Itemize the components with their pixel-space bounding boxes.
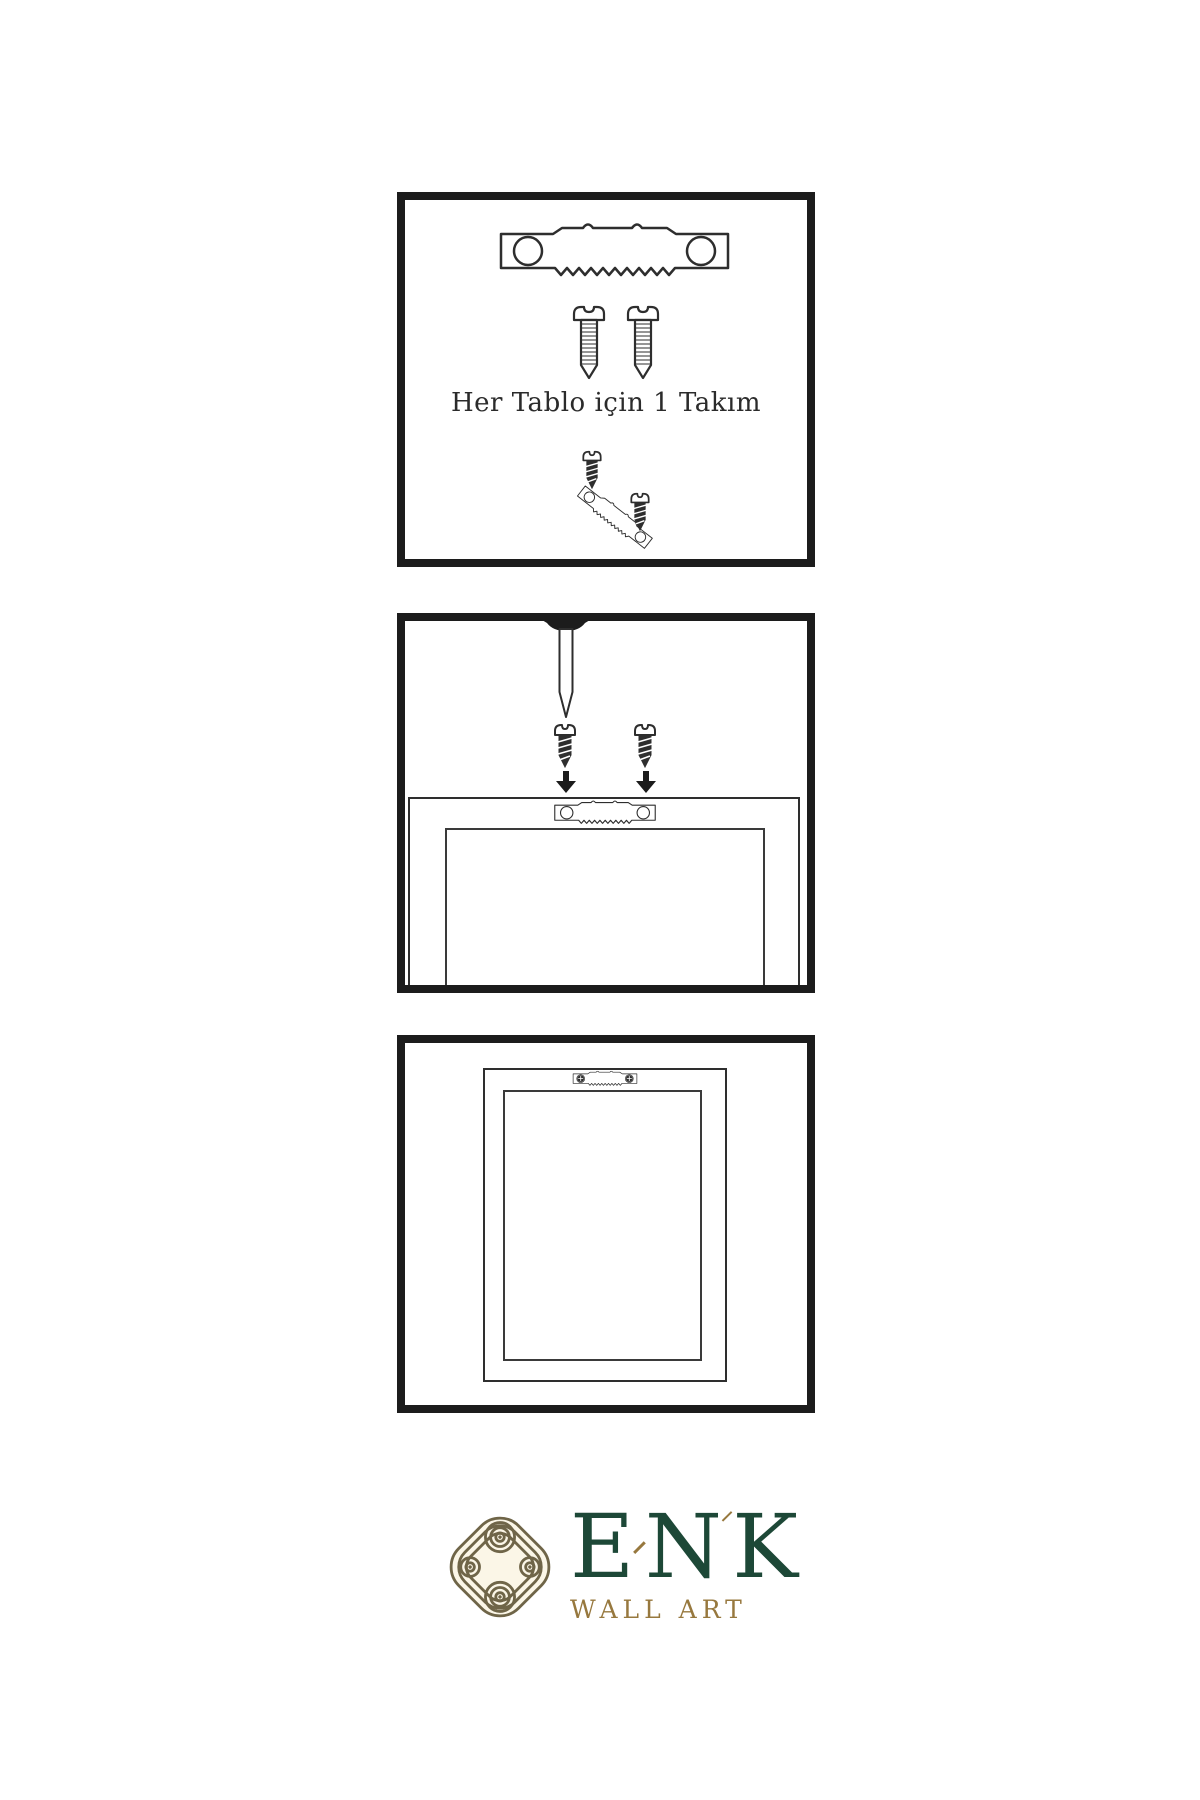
arrow-down-icon bbox=[556, 771, 576, 793]
brand-letter: N bbox=[645, 1500, 722, 1594]
screw-icon bbox=[625, 304, 661, 380]
arrow-down-icon bbox=[636, 771, 656, 793]
picture-frame-back bbox=[408, 797, 800, 993]
knot-logo-icon bbox=[438, 1502, 562, 1632]
sawtooth-hanger-screwed-icon bbox=[572, 1070, 638, 1087]
nail-icon bbox=[542, 620, 590, 720]
dark-screw-icon bbox=[629, 492, 651, 532]
picture-frame bbox=[483, 1068, 727, 1382]
assembly-instructions-page: Her Tablo için 1 Takım E bbox=[0, 0, 1200, 1800]
brand-letter: E bbox=[570, 1500, 634, 1594]
brand-name: E N K bbox=[570, 1500, 798, 1594]
dark-screw-icon bbox=[633, 723, 657, 769]
screw-icon bbox=[571, 304, 607, 380]
brand-logo: E N K WALL ART bbox=[438, 1500, 798, 1640]
kit-caption: Her Tablo için 1 Takım bbox=[405, 388, 807, 418]
sawtooth-hanger-icon bbox=[553, 799, 657, 826]
brand-subtitle: WALL ART bbox=[570, 1595, 798, 1624]
hanging-frame-panel bbox=[397, 1035, 815, 1413]
dark-screw-icon bbox=[553, 723, 577, 769]
sawtooth-hanger-icon bbox=[497, 223, 732, 278]
picture-frame-inner-edge bbox=[503, 1090, 702, 1361]
brand-letter: K bbox=[732, 1500, 798, 1594]
diamond-icon bbox=[722, 1511, 733, 1522]
brand-text: E N K WALL ART bbox=[570, 1500, 798, 1624]
picture-frame-inner-edge bbox=[445, 828, 765, 993]
hardware-kit-panel: Her Tablo için 1 Takım bbox=[397, 192, 815, 567]
wall-mounting-panel bbox=[397, 613, 815, 993]
